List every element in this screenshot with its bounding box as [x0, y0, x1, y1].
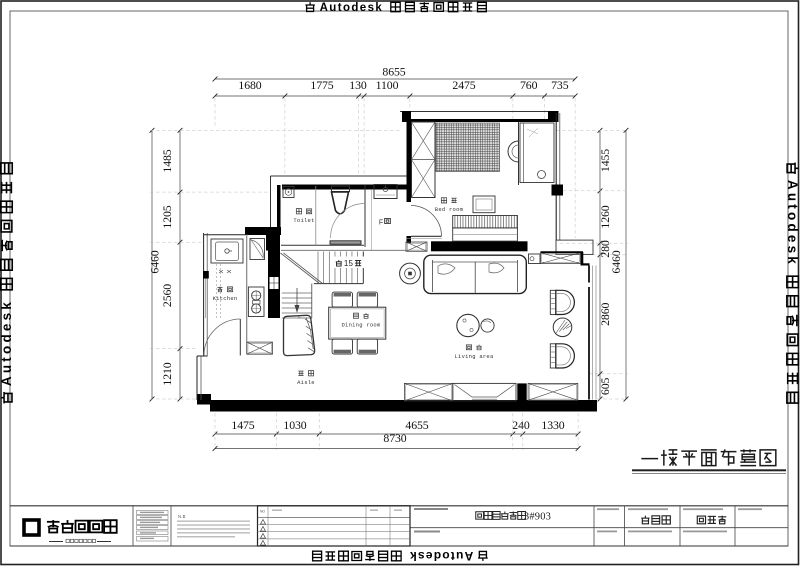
svg-text:1775: 1775 — [310, 78, 333, 92]
svg-text:1260: 1260 — [598, 205, 612, 228]
svg-text:6460: 6460 — [148, 250, 162, 273]
svg-text:1455: 1455 — [598, 149, 612, 172]
svg-text:240: 240 — [512, 418, 530, 432]
svg-text:760: 760 — [520, 78, 538, 92]
svg-text:1485: 1485 — [160, 149, 174, 172]
svg-text:1210: 1210 — [160, 362, 174, 385]
svg-text:F: F — [379, 220, 383, 227]
svg-text:735: 735 — [551, 78, 569, 92]
svg-text:8655: 8655 — [382, 65, 405, 79]
svg-text:Living area: Living area — [454, 353, 494, 360]
svg-text:4655: 4655 — [405, 418, 428, 432]
svg-text:1330: 1330 — [541, 418, 564, 432]
svg-text:NO: NO — [260, 510, 265, 514]
svg-text:Autodesk: Autodesk — [409, 549, 473, 563]
svg-text:Aisle: Aisle — [297, 379, 315, 386]
svg-text:130: 130 — [349, 78, 367, 92]
svg-text:Autodesk: Autodesk — [0, 299, 14, 386]
svg-text:6460: 6460 — [609, 250, 623, 273]
svg-text:Dining room: Dining room — [341, 322, 381, 329]
svg-text:1205: 1205 — [160, 205, 174, 228]
svg-text:2860: 2860 — [598, 303, 612, 326]
svg-text:605: 605 — [598, 378, 612, 396]
svg-text:15: 15 — [344, 259, 354, 268]
svg-text:2560: 2560 — [160, 284, 174, 307]
svg-text:1680: 1680 — [238, 78, 261, 92]
svg-text:1030: 1030 — [283, 418, 306, 432]
svg-text:Autodesk: Autodesk — [785, 180, 800, 267]
svg-text:Kitchen: Kitchen — [213, 295, 238, 302]
svg-text:1475: 1475 — [231, 418, 254, 432]
svg-text:2475: 2475 — [452, 78, 475, 92]
svg-text:N.B: N.B — [178, 514, 186, 519]
svg-text:3#903: 3#903 — [524, 511, 551, 522]
svg-text:8730: 8730 — [383, 431, 406, 445]
svg-text:Toilet: Toilet — [293, 217, 314, 224]
svg-text:Bed room: Bed room — [435, 206, 464, 213]
svg-text:Autodesk: Autodesk — [320, 2, 384, 14]
svg-text:1100: 1100 — [376, 78, 399, 92]
